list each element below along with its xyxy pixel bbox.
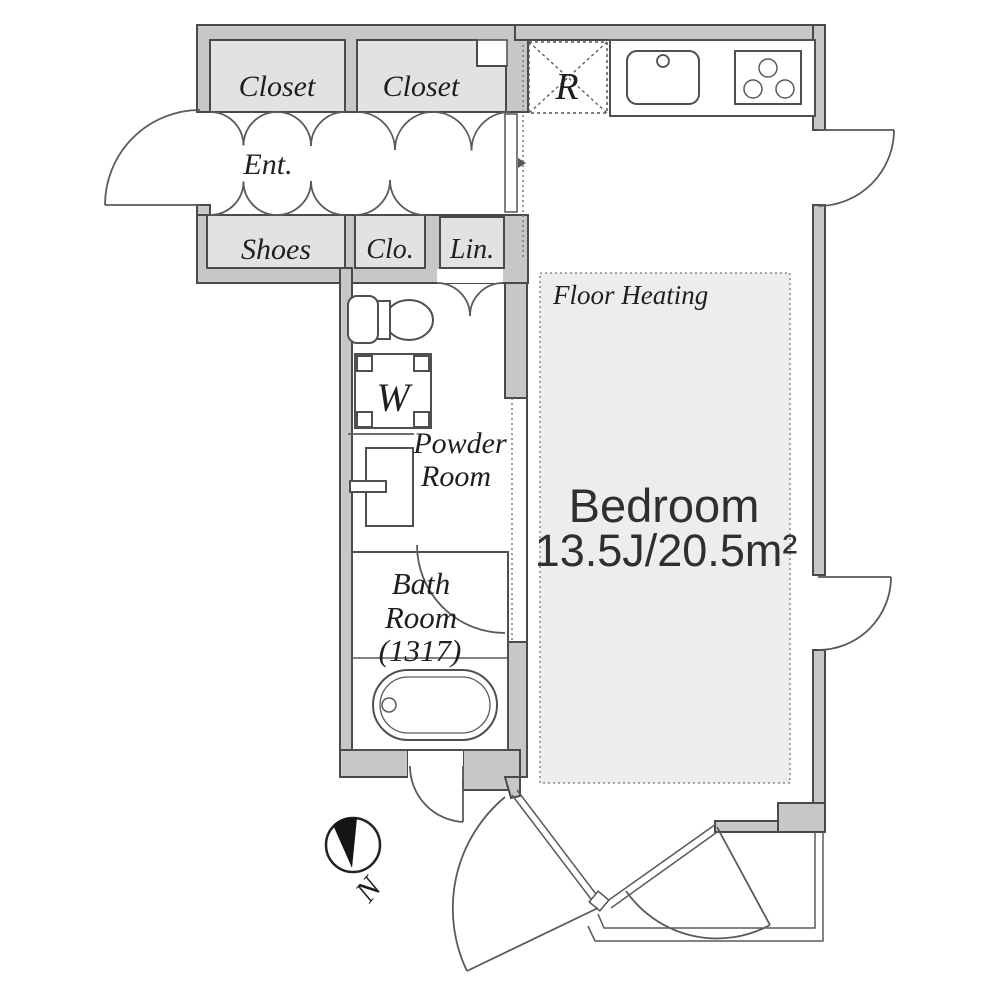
floor-heating-label: Floor Heating — [552, 280, 708, 310]
drain-icon — [382, 698, 396, 712]
terrace-door-left-swing — [453, 797, 598, 971]
bath-room-label-3: (1317) — [379, 633, 462, 668]
door-meeting-stile — [589, 891, 609, 911]
bath-room-label-2: Room — [384, 600, 457, 635]
refrigerator-label: R — [554, 66, 578, 108]
powder-room-label-2: Room — [420, 460, 491, 493]
clo-label: Clo. — [366, 234, 413, 265]
hall-sliding-door — [505, 114, 526, 212]
floor-plan-drawing: N Closet Closet Ent. Shoes Clo. Lin. R W… — [0, 0, 1000, 1000]
washer-label: W — [376, 375, 413, 420]
vanity-basin — [348, 434, 414, 526]
bath-opening — [408, 748, 463, 779]
shoes-folding-door — [210, 181, 345, 215]
clo-folding-door — [355, 180, 425, 215]
shoes-label: Shoes — [241, 233, 311, 266]
balcony-rail — [588, 832, 823, 941]
bathtub — [373, 670, 497, 740]
toilet — [348, 296, 433, 343]
compass: N — [326, 817, 389, 909]
bedroom-size-label: 13.5J/20.5m² — [535, 525, 798, 576]
slide-arrow-icon — [518, 158, 526, 168]
lin-folding-door — [437, 283, 503, 316]
compass-north-label: N — [347, 868, 389, 909]
bath-room-label-1: Bath — [392, 566, 451, 601]
closet-left-folding-door — [210, 112, 345, 146]
closet-right-folding-door — [357, 112, 510, 151]
closet-notch — [477, 40, 507, 66]
bedroom-side-door — [818, 577, 891, 650]
balcony-and-terrace-doors — [453, 790, 823, 971]
kitchen-side-door — [818, 130, 894, 206]
floor-plan-page: N Closet Closet Ent. Shoes Clo. Lin. R W… — [0, 0, 1000, 1000]
closet-left-label: Closet — [239, 70, 316, 103]
faucet-icon — [657, 55, 669, 67]
lin-label: Lin. — [449, 234, 494, 265]
entrance-label: Ent. — [242, 148, 292, 181]
powder-room-label-1: Powder — [412, 427, 507, 460]
closet-right-label: Closet — [383, 70, 460, 103]
linen-opening — [437, 269, 503, 283]
entrance-door — [105, 110, 200, 205]
